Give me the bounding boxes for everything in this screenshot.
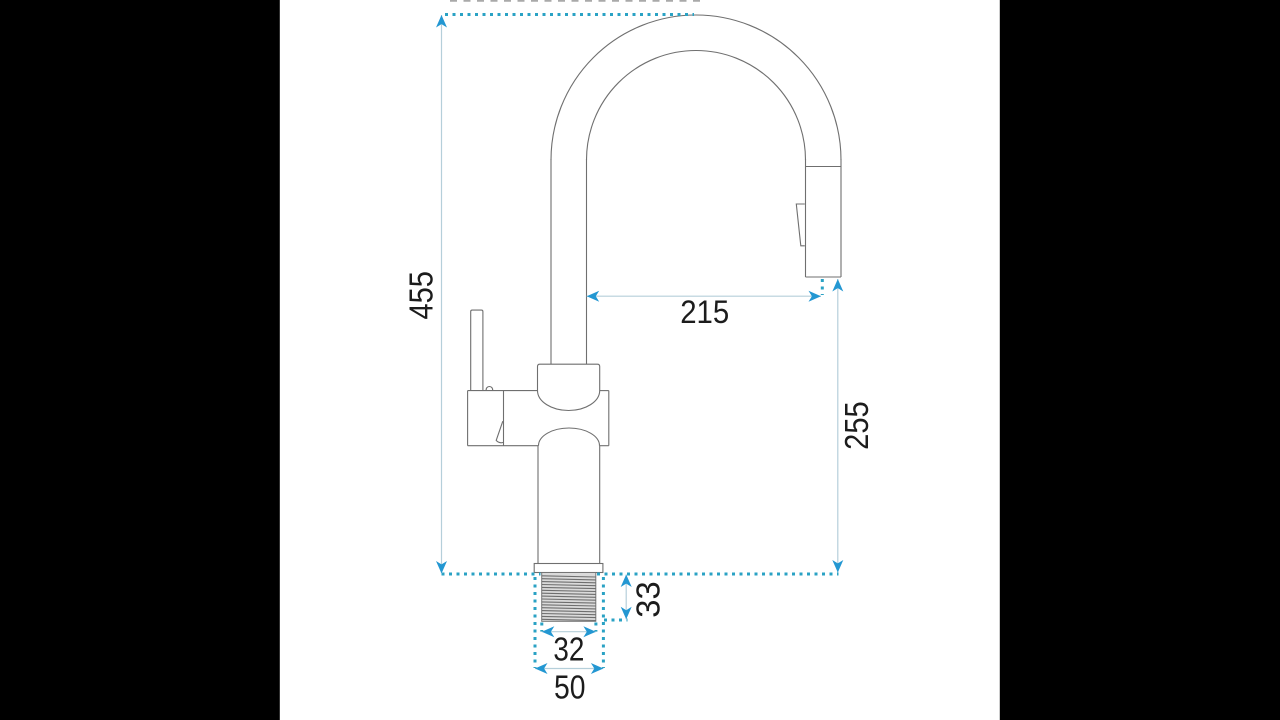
- svg-text:50: 50: [554, 669, 586, 706]
- svg-text:32: 32: [553, 630, 584, 667]
- svg-text:455: 455: [403, 271, 440, 320]
- svg-text:215: 215: [680, 294, 729, 330]
- svg-text:33: 33: [630, 581, 667, 618]
- svg-text:255: 255: [838, 401, 875, 450]
